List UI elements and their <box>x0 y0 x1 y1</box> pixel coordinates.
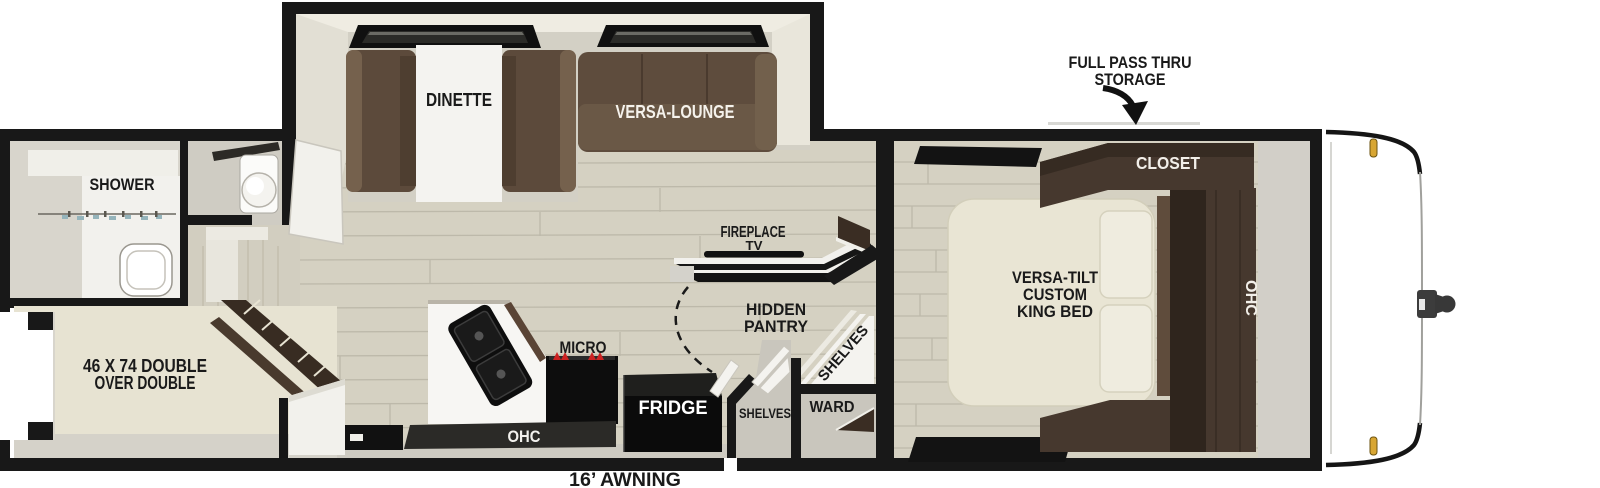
svg-text:PANTRY: PANTRY <box>744 317 809 336</box>
svg-text:SHOWER: SHOWER <box>90 175 155 194</box>
svg-text:VERSA-LOUNGE: VERSA-LOUNGE <box>616 102 735 122</box>
svg-text:CLOSET: CLOSET <box>1136 153 1200 173</box>
svg-text:DINETTE: DINETTE <box>426 90 492 110</box>
svg-text:KING BED: KING BED <box>1017 302 1093 321</box>
svg-text:SHELVES: SHELVES <box>739 405 791 421</box>
svg-text:MICRO: MICRO <box>560 339 607 357</box>
svg-text:WARD: WARD <box>810 399 855 416</box>
svg-text:FRIDGE: FRIDGE <box>639 397 708 419</box>
svg-text:TV: TV <box>746 238 763 253</box>
svg-text:16’ AWNING: 16’ AWNING <box>569 469 681 488</box>
svg-text:OHC: OHC <box>508 428 541 446</box>
svg-text:OHC: OHC <box>1242 280 1259 316</box>
svg-text:OVER DOUBLE: OVER DOUBLE <box>95 373 196 393</box>
